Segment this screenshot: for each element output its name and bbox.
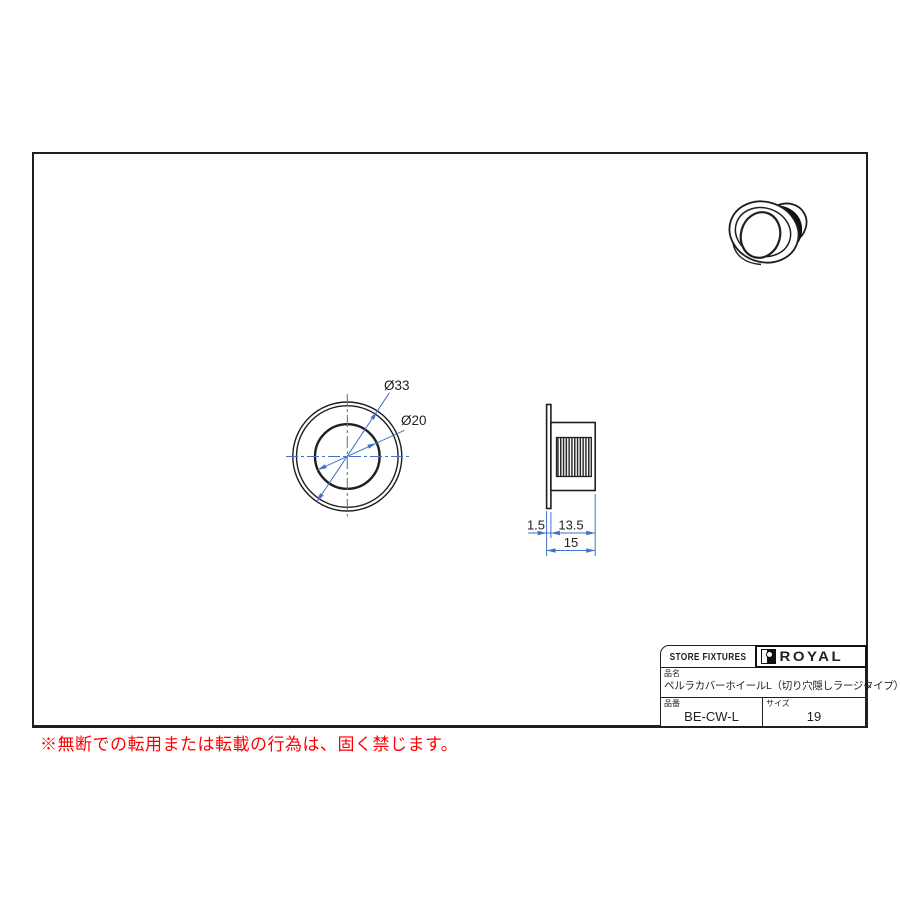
front-center-lines xyxy=(286,393,409,517)
product-code-cell: 品番 BE-CW-L xyxy=(661,698,763,727)
arrow xyxy=(367,443,376,449)
brand-name: ROYAL xyxy=(780,648,844,664)
store-fixtures-label: STORE FIXTURES xyxy=(665,651,751,662)
product-name-label: 品名 xyxy=(664,669,862,679)
front-view: Ø33 Ø20 xyxy=(286,378,427,517)
arrow xyxy=(586,548,595,552)
size-cell: サイズ 19 xyxy=(763,698,865,727)
arrow xyxy=(586,531,595,535)
code-size-row: 品番 BE-CW-L サイズ 19 xyxy=(661,698,865,727)
product-code-value: BE-CW-L xyxy=(664,709,759,724)
iso-view xyxy=(721,192,814,272)
arrow xyxy=(318,464,327,470)
dim-label-body-depth: 13.5 xyxy=(558,518,583,533)
product-code-label: 品番 xyxy=(664,699,759,709)
dim-label-flange-thickness: 1.5 xyxy=(527,518,545,533)
copyright-warning: ※無断での転用または転載の行為は、固く禁じます。 xyxy=(40,730,458,755)
drawing-canvas: Ø33 Ø20 1.5 13.5 15 xyxy=(0,0,900,900)
brand-box: ROYAL xyxy=(755,645,867,669)
side-view: 1.5 13.5 15 xyxy=(527,405,595,557)
title-block-header: STORE FIXTURES ROYAL xyxy=(661,646,865,668)
product-name-value: ペルラカバーホイールL（切り穴隠しラージタイプ） xyxy=(664,679,862,694)
dim-label-inner-dia: Ø20 xyxy=(401,413,427,428)
dim-label-outer-dia: Ø33 xyxy=(384,378,410,393)
size-label: サイズ xyxy=(766,699,862,709)
arrow xyxy=(547,548,556,552)
side-knurl xyxy=(557,438,592,477)
dim-label-total-depth: 15 xyxy=(564,535,578,550)
product-name-row: 品名 ペルラカバーホイールL（切り穴隠しラージタイプ） xyxy=(661,668,865,698)
size-value: 19 xyxy=(766,709,862,724)
royal-logo-dot xyxy=(766,651,773,658)
royal-logo-icon xyxy=(761,649,776,664)
title-block: STORE FIXTURES ROYAL 品名 ペルラカバーホイールL（切り穴隠… xyxy=(660,645,866,727)
